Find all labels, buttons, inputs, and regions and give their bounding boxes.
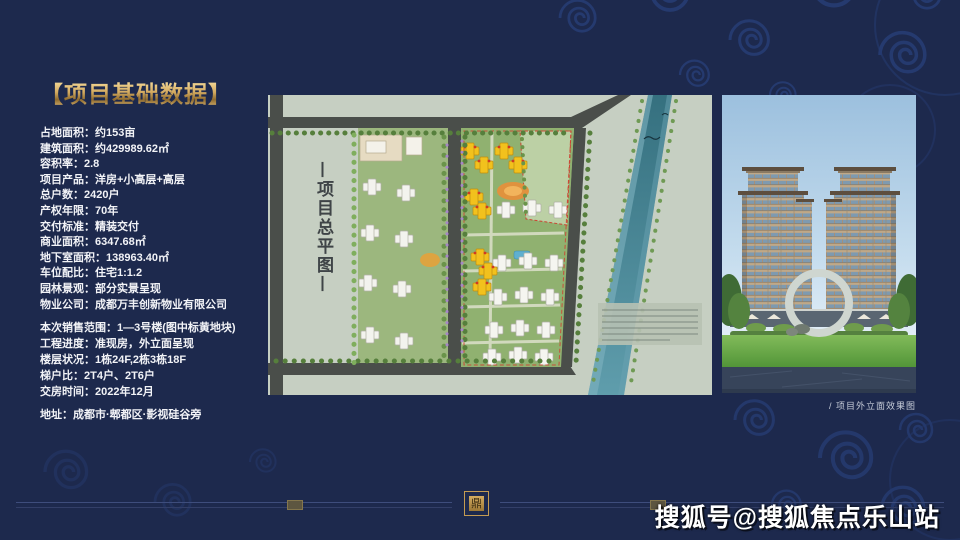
facade-rendering bbox=[722, 95, 916, 393]
border-line-left bbox=[16, 502, 452, 508]
neighbor-playground bbox=[420, 253, 440, 267]
data-line-plot-ratio: 容积率：2.8 bbox=[40, 157, 276, 173]
project-site bbox=[461, 128, 574, 367]
data-line-delivery-standard: 交付标准：精装交付 bbox=[40, 220, 276, 236]
site-plan-map: —项目总平图— bbox=[268, 95, 712, 395]
data-line-tenure: 产权年限：70年 bbox=[40, 204, 276, 220]
page-title: 【项目基础数据】 bbox=[40, 82, 270, 108]
data-line-commercial-area: 商业面积：6347.68㎡ bbox=[40, 235, 276, 251]
seal-character: 鼎 bbox=[469, 496, 484, 511]
data-line-site-area: 占地面积：约153亩 bbox=[40, 126, 276, 142]
address-line: 地址：成都市·郫都区·影视硅谷旁 bbox=[40, 406, 201, 422]
data-line-elevator-ratio: 梯户比：2T4户、2T6户 bbox=[40, 368, 276, 384]
data-line-progress: 工程进度：准现房，外立面呈现 bbox=[40, 336, 276, 352]
playground-inner bbox=[504, 186, 522, 196]
data-line-floors: 楼层状况：1栋24F,2栋3栋18F bbox=[40, 352, 276, 368]
lawn bbox=[722, 335, 916, 369]
data-line-landscape: 园林景观：部分实景呈现 bbox=[40, 282, 276, 298]
facade-rendering-image bbox=[722, 95, 916, 393]
data-line-handover-date: 交房时间：2022年12月 bbox=[40, 384, 276, 400]
border-ornament-left bbox=[287, 500, 303, 510]
data-line-households: 总户数：2420户 bbox=[40, 188, 276, 204]
rendering-caption: / 项目外立面效果图 bbox=[770, 399, 916, 412]
data-line-sales-scope: 本次销售范围：1—3号楼(图中标黄地块) bbox=[40, 320, 276, 336]
map-vertical-title: —项目总平图— bbox=[306, 161, 336, 321]
project-data-panel: 【项目基础数据】 占地面积：约153亩 建筑面积：约429989.62㎡ 容积率… bbox=[40, 82, 270, 108]
data-line-property-company: 物业公司：成都万丰创新物业有限公司 bbox=[40, 298, 276, 314]
data-line-basement-area: 地下室面积：138963.40㎡ bbox=[40, 251, 276, 267]
slide-root: 【项目基础数据】 占地面积：约153亩 建筑面积：约429989.62㎡ 容积率… bbox=[0, 0, 960, 540]
map-disclaimer-block bbox=[598, 303, 702, 345]
data-line-parking-ratio: 车位配比：住宅1:1.2 bbox=[40, 266, 276, 282]
sales-data-list: 本次销售范围：1—3号楼(图中标黄地块) 工程进度：准现房，外立面呈现 楼层状况… bbox=[40, 320, 276, 400]
data-line-building-area: 建筑面积：约429989.62㎡ bbox=[40, 142, 276, 158]
watermark-text: 搜狐号@搜狐焦点乐山站 bbox=[655, 498, 940, 534]
basic-data-list: 占地面积：约153亩 建筑面积：约429989.62㎡ 容积率：2.8 项目产品… bbox=[40, 126, 276, 313]
neighbor-block bbox=[358, 128, 448, 363]
data-line-product: 项目产品：洋房+小高层+高层 bbox=[40, 173, 276, 189]
pavement bbox=[722, 367, 916, 393]
seal-icon: 鼎 bbox=[464, 491, 489, 516]
